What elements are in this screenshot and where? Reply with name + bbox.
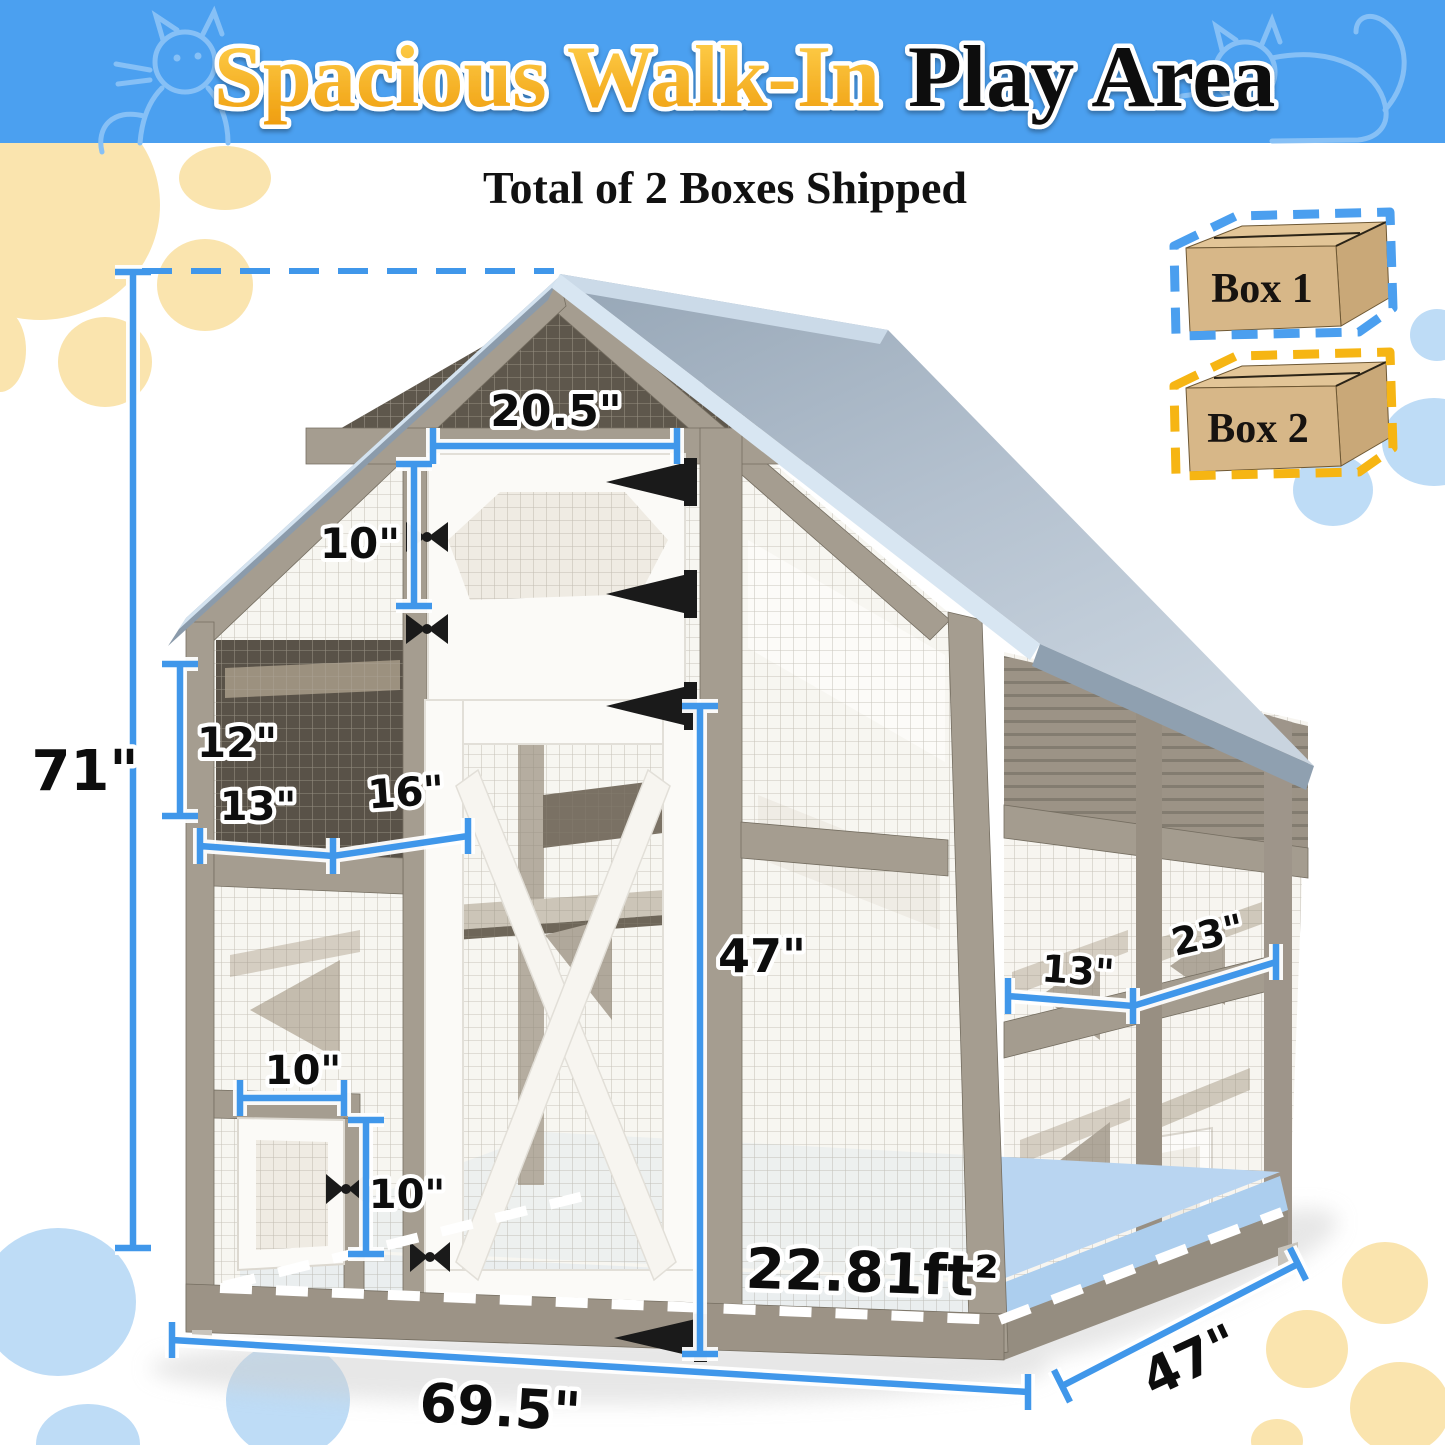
- legend-box1-label: Box 1: [1211, 266, 1313, 312]
- infographic-page: 71" 20.5" 10" 12" 13" 16" 47" 13" 23" 10…: [0, 0, 1445, 1445]
- dim-walk-in-door-height: 47": [718, 929, 806, 983]
- dim-small-door-width: 10": [265, 1048, 342, 1094]
- dim-total-height: 71": [31, 739, 138, 804]
- header-banner: Spacious Walk-In Play Area: [0, 0, 1445, 152]
- dim-left-shelf-b: 16": [366, 767, 446, 818]
- dim-top-door-height: 10": [320, 519, 400, 568]
- page-title-rest: Play Area: [908, 29, 1275, 126]
- dim-right-shelf-a: 13": [1040, 947, 1116, 996]
- dim-base-width: 69.5": [418, 1371, 583, 1444]
- dim-left-panel-height: 12": [197, 718, 277, 767]
- catio-illustration: [168, 274, 1314, 1362]
- shipping-box-legend: Box 1 Box 2: [1174, 212, 1393, 476]
- catio-infographic: 71" 20.5" 10" 12" 13" 16" 47" 13" 23" 10…: [0, 0, 1445, 1445]
- dim-small-door-height: 10": [369, 1172, 446, 1218]
- page-title-highlight: Spacious Walk-In: [214, 29, 880, 126]
- legend-box2-label: Box 2: [1207, 406, 1309, 452]
- dim-floor-area: 22.81ft²: [745, 1237, 1000, 1311]
- legend-box-2: Box 2: [1174, 352, 1393, 476]
- subtitle-shipping-note: Total of 2 Boxes Shipped: [483, 162, 967, 213]
- dim-left-shelf-a: 13": [220, 784, 297, 830]
- legend-box-1: Box 1: [1174, 212, 1393, 336]
- dim-top-door-width: 20.5": [490, 386, 621, 437]
